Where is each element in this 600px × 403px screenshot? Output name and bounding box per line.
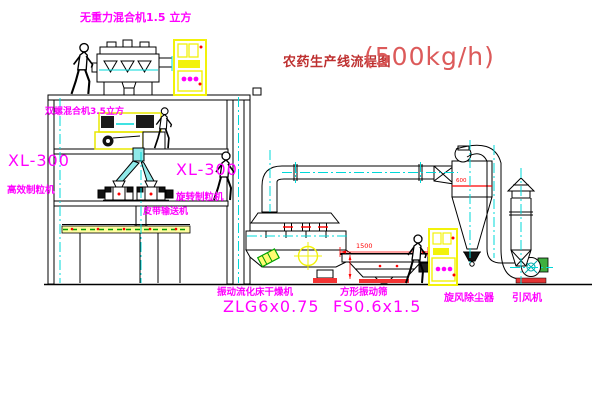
label-granulator-left-model: XL-300: [8, 153, 70, 169]
label-granulator-mid-name: 旋转制粒机: [176, 193, 224, 203]
label-granulator-left-name: 高效制粒机: [7, 186, 55, 196]
diagram-capacity: (500kg/h): [364, 42, 495, 71]
label-sieve-model: FS0.6x1.5: [333, 299, 421, 315]
fluid-bed-dryer: [246, 212, 356, 283]
label-dryer-model: ZLG6x0.75: [223, 299, 320, 315]
label-top-mixer: 无重力混合机1.5 立方: [80, 12, 191, 23]
top-mixer-machine: [92, 40, 172, 95]
label-floor2-mixer: 双螺混合机3.5立方: [45, 108, 124, 117]
worker-figure-1: [72, 44, 93, 94]
label-granulator-mid-model: XL-300: [176, 162, 238, 178]
label-cyclone: 旋风除尘器: [444, 294, 494, 304]
label-belt-conveyor: 皮带输送机: [143, 208, 188, 217]
belt-conveyor: [62, 225, 190, 284]
cabinet-knobs-icon: [182, 77, 199, 82]
label-fan: 引风机: [512, 294, 542, 304]
dimension-sieve-width: 1500: [356, 243, 373, 250]
control-cabinet-1: [174, 40, 206, 95]
granulator-left: [98, 181, 137, 201]
control-cabinet-2: [429, 229, 457, 285]
exhaust-duct: [262, 164, 452, 212]
dimension-cyclone: 600: [456, 179, 467, 185]
floor2-mixer-machine: [95, 113, 165, 149]
cabinet-knobs-icon: [436, 267, 453, 272]
process-flow-drawing: 农药生产线流程图 (500kg/h) 无重力混合机1.5 立方 双螺混合机3.5…: [0, 0, 600, 403]
